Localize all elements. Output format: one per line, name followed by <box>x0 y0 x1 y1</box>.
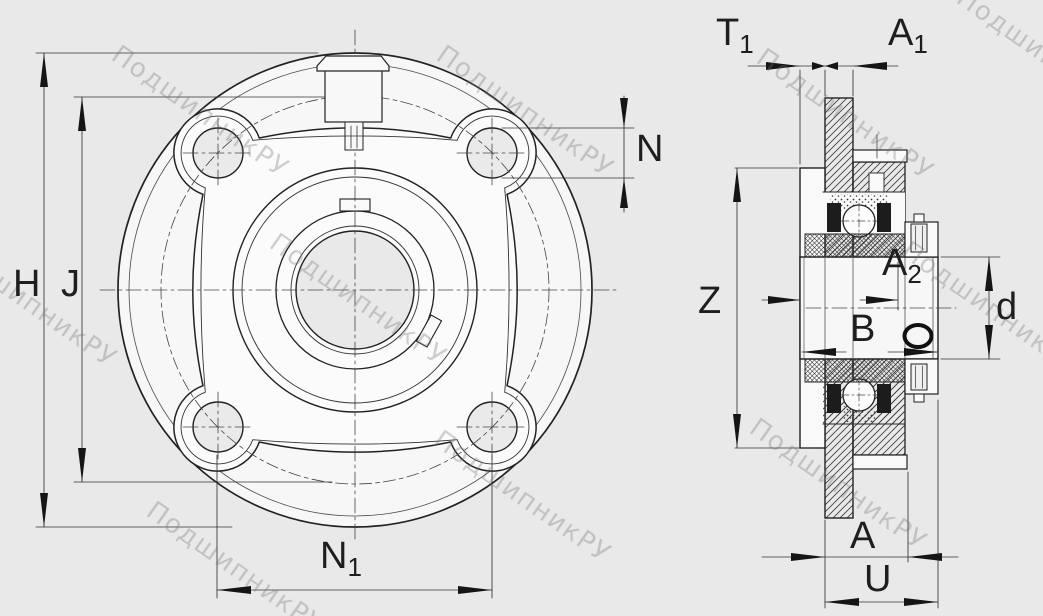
grease-fitting-lip <box>317 56 389 71</box>
locking-collar-lower <box>905 359 938 402</box>
seal-right <box>877 203 891 232</box>
spigot-step-bottom <box>853 455 907 469</box>
grease-passage <box>869 173 884 192</box>
spigot-step-top <box>853 150 907 162</box>
side-section-view <box>733 62 1000 608</box>
bearing-lower <box>823 377 905 424</box>
front-view <box>36 30 634 598</box>
set-screw <box>911 224 927 252</box>
technical-drawing-canvas <box>0 0 1043 616</box>
bearing-upper <box>823 192 905 239</box>
seal-left <box>827 384 841 413</box>
seal-right <box>877 384 891 413</box>
seal-left <box>827 203 841 232</box>
set-screw-head <box>914 394 924 402</box>
technical-drawing-page: ПодшипникРУ ПодшипникРУ ПодшипникРУ Подш… <box>0 0 1043 616</box>
set-screw-head <box>914 214 924 222</box>
set-screw <box>911 364 927 390</box>
setscrew-hole-in-bore <box>905 325 932 347</box>
locking-collar-upper <box>905 214 938 257</box>
